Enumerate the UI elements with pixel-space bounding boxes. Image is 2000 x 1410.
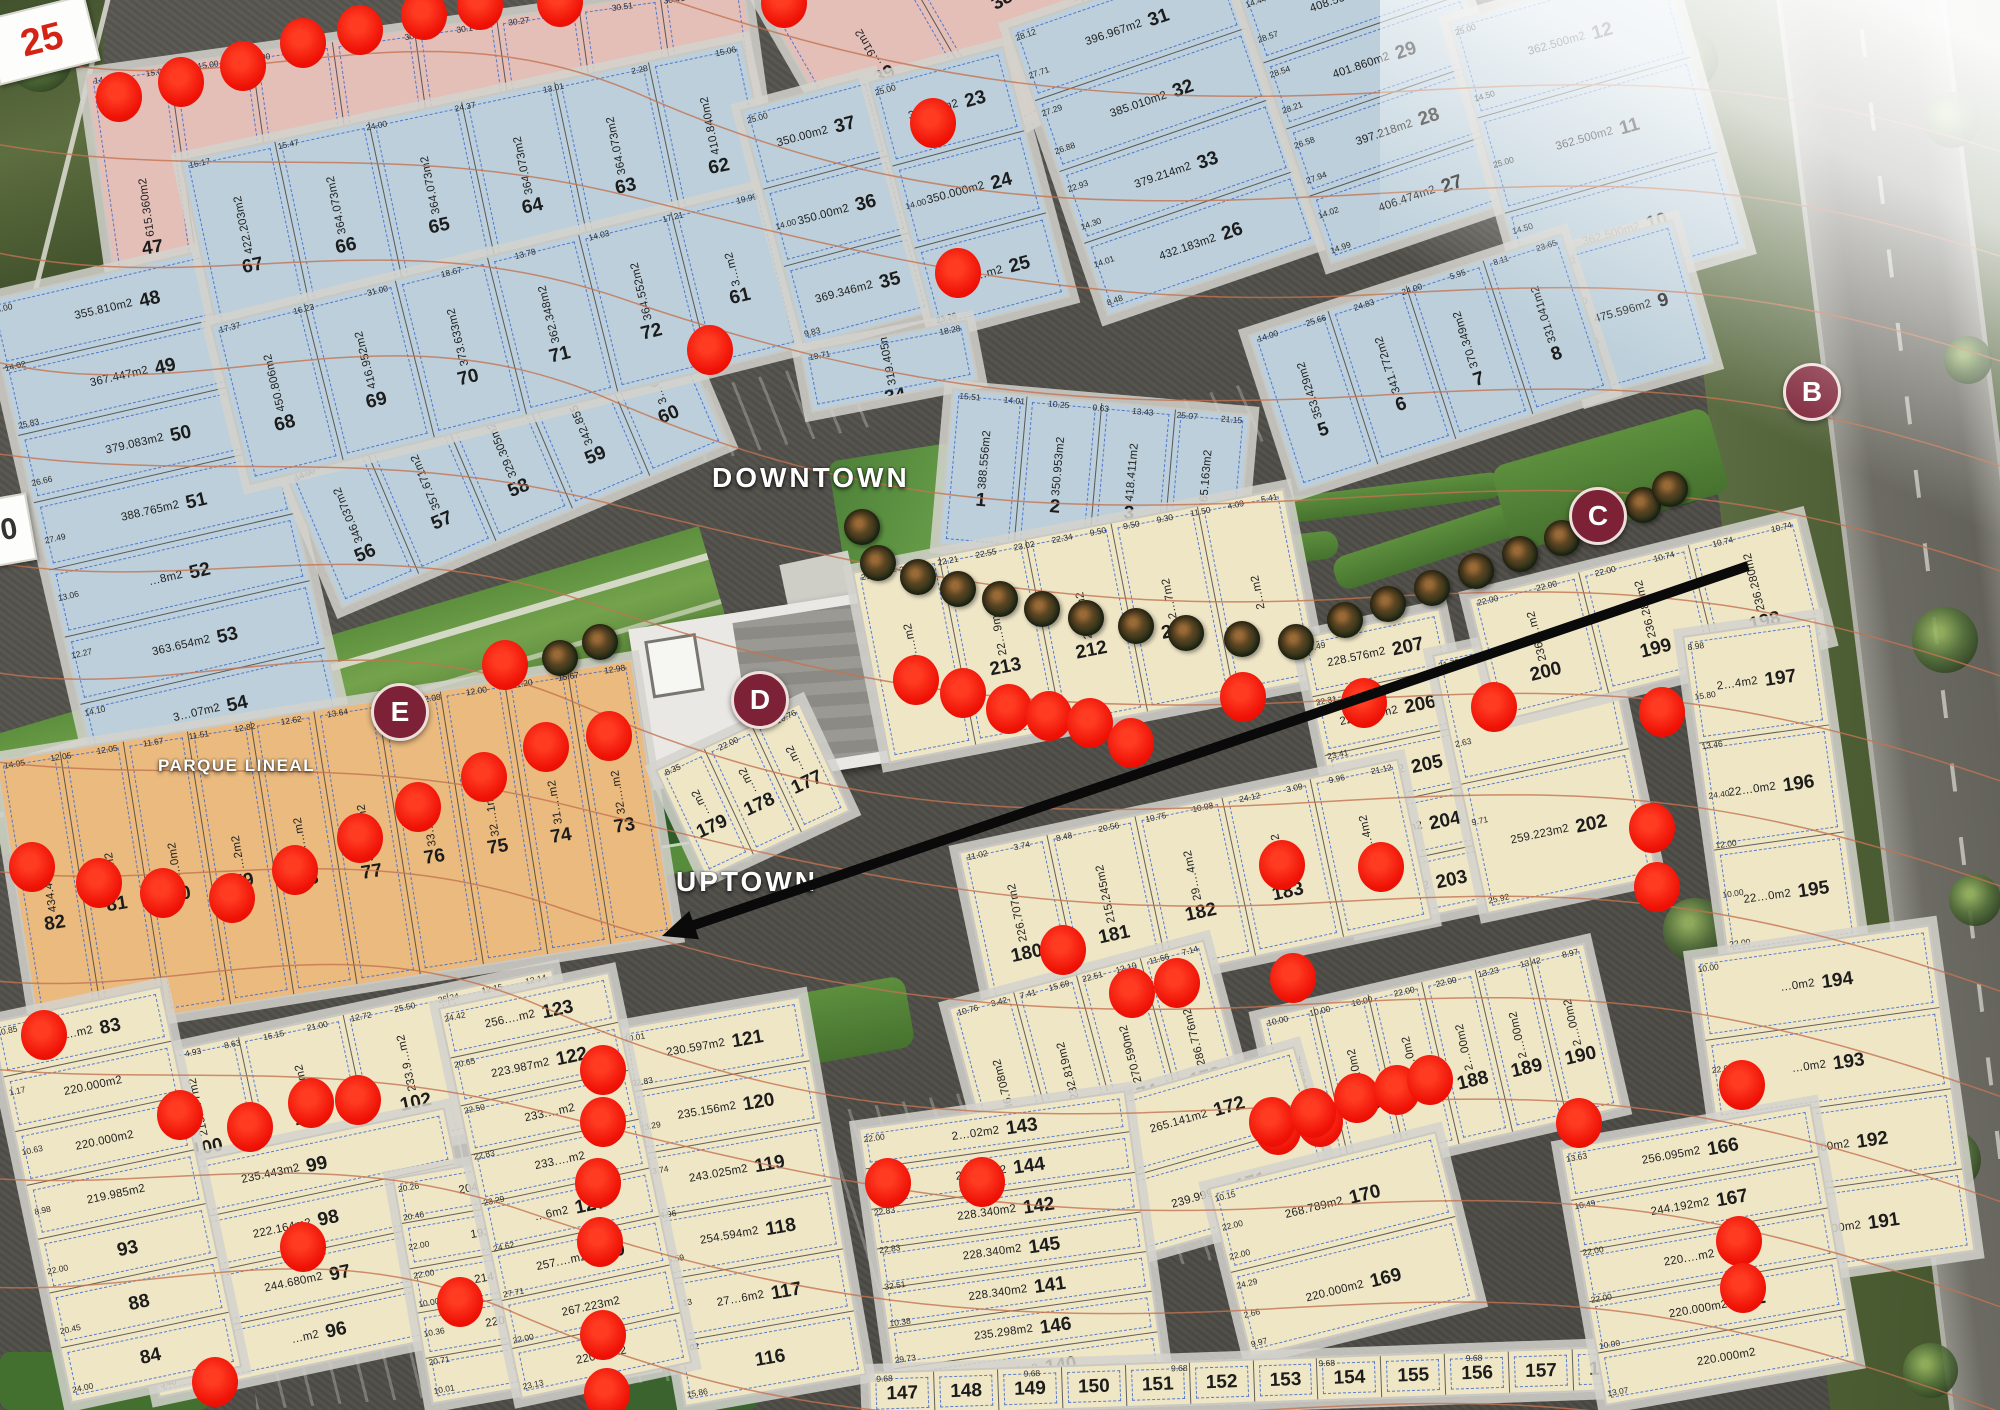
sold-lot-dot bbox=[192, 1357, 238, 1407]
tree-clump bbox=[1924, 92, 1980, 148]
lot-number: 6 bbox=[1393, 394, 1409, 415]
lot: 148 bbox=[934, 1369, 999, 1410]
lot-number: 51 bbox=[184, 489, 209, 512]
tree-clump bbox=[1949, 874, 2000, 926]
sold-lot-dot bbox=[1629, 803, 1675, 853]
tree-clump bbox=[1903, 1343, 1958, 1398]
lot-number: 12 bbox=[1589, 19, 1615, 43]
sold-lot-dot bbox=[1716, 1216, 1762, 1266]
lot-area: …91m2 bbox=[853, 26, 884, 68]
sold-lot-dot bbox=[1067, 698, 1113, 748]
lot-area: 350.00m2 bbox=[796, 202, 850, 227]
lot-area: 259.223m2 bbox=[1510, 822, 1571, 846]
lot-number: 27 bbox=[1439, 172, 1465, 197]
map-marker-d: D bbox=[731, 671, 789, 729]
lot-area: 363.654m2 bbox=[151, 633, 212, 658]
lot: 155 bbox=[1381, 1354, 1446, 1397]
sold-lot-dot bbox=[1154, 958, 1200, 1008]
sold-lot-dot bbox=[1259, 840, 1305, 890]
lot-area: 388.765m2 bbox=[120, 499, 181, 524]
sold-lot-dot bbox=[1634, 862, 1680, 912]
lot-number: 180 bbox=[1009, 941, 1044, 966]
lot: 149 bbox=[998, 1367, 1063, 1410]
lot-number: 123 bbox=[540, 997, 575, 1022]
lot-number: 202 bbox=[1574, 811, 1609, 836]
lot-number: 166 bbox=[1706, 1135, 1741, 1159]
lot-area: 228.340m2 bbox=[962, 1243, 1022, 1263]
lot-number: 70 bbox=[456, 366, 481, 390]
lot-area: 397.218m2 bbox=[1354, 117, 1414, 148]
lot-number: 179 bbox=[693, 811, 730, 842]
lot-area: 369.346m2 bbox=[814, 279, 874, 306]
tree-icon bbox=[1502, 536, 1538, 572]
lot: 157 bbox=[1509, 1349, 1574, 1392]
lot-number: 190 bbox=[1563, 1044, 1598, 1070]
map-marker-c: C bbox=[1569, 487, 1627, 545]
lot-number: 191 bbox=[1867, 1210, 1901, 1233]
lot-area: 364.552m2 bbox=[628, 261, 654, 321]
tree-icon bbox=[1024, 591, 1060, 627]
sold-lot-dot bbox=[96, 72, 142, 122]
sold-lot-dot bbox=[580, 1045, 626, 1095]
lot-area: 22…0m2 bbox=[1728, 781, 1777, 800]
lot-area: 2…00m2 bbox=[1508, 1010, 1530, 1059]
lot-area: 331.041m2 bbox=[1529, 285, 1559, 345]
sold-lot-dot bbox=[1639, 687, 1685, 737]
lot-number: 119 bbox=[753, 1152, 786, 1176]
sold-lot-dot bbox=[1108, 718, 1154, 768]
lot-number: 182 bbox=[1183, 899, 1218, 924]
sold-lot-dot bbox=[272, 845, 318, 895]
lot-number: 75 bbox=[486, 836, 510, 858]
lot-area: 329.305m2 bbox=[485, 420, 519, 479]
lot-area: 364.073m2 bbox=[605, 116, 629, 177]
lot-area: …2m2 bbox=[230, 834, 247, 870]
lot-number: 145 bbox=[1027, 1234, 1061, 1257]
lot-number: 35 bbox=[877, 268, 902, 292]
lot-number: 61 bbox=[728, 285, 753, 309]
lot-number: 188 bbox=[1455, 1068, 1490, 1094]
lot-number: 167 bbox=[1715, 1186, 1750, 1210]
lot-number: 93 bbox=[115, 1237, 140, 1260]
sold-lot-dot bbox=[1358, 842, 1404, 892]
lot-area: …m2 bbox=[290, 1328, 320, 1346]
lot-block: 13.6316.4922.0022.0010.0013.07256.095m21… bbox=[1560, 1104, 1857, 1406]
sold-lot-dot bbox=[227, 1102, 273, 1152]
lot-area: 370.349m2 bbox=[1451, 310, 1481, 370]
lot-number: 48 bbox=[137, 287, 162, 310]
sold-lot-dot bbox=[209, 873, 255, 923]
sold-lot-dot bbox=[9, 842, 55, 892]
lot-area: 365.163m2 bbox=[1198, 449, 1215, 509]
lot-area: 220.000m2 bbox=[63, 1074, 124, 1098]
lot-area: 373.633m2 bbox=[445, 307, 471, 367]
tree-icon bbox=[1327, 602, 1363, 638]
lot-number: 193 bbox=[1832, 1050, 1866, 1073]
lot-number: 49 bbox=[153, 355, 178, 378]
lot-number: 50 bbox=[168, 422, 193, 445]
lot-number: 38 bbox=[988, 0, 1016, 13]
lot-number: 199 bbox=[1638, 636, 1673, 662]
sold-lot-dot bbox=[1026, 691, 1072, 741]
lot-number: 153 bbox=[1269, 1370, 1301, 1390]
sold-lot-dot bbox=[1270, 953, 1316, 1003]
lot-number: 200 bbox=[1528, 659, 1563, 685]
lot-area: 353.429m2 bbox=[1296, 360, 1326, 420]
lot-area: 416.952m2 bbox=[353, 330, 379, 390]
lot-number: 31 bbox=[1145, 5, 1171, 30]
lot-number: 65 bbox=[427, 214, 452, 237]
lot: 151 bbox=[1126, 1363, 1191, 1406]
lot-area: 357.671m2 bbox=[409, 453, 443, 512]
sold-lot-dot bbox=[220, 41, 266, 91]
lot: 153 bbox=[1253, 1358, 1318, 1401]
lot-area: 233.…m2 bbox=[523, 1101, 576, 1123]
lot-area: 244.680m2 bbox=[263, 1271, 324, 1295]
lot-number: 73 bbox=[613, 815, 637, 837]
lot-area: …0m2 bbox=[1791, 1059, 1827, 1076]
tree-icon bbox=[1370, 586, 1406, 622]
sold-lot-dot bbox=[1290, 1088, 1336, 1138]
sold-lot-dot bbox=[940, 668, 986, 718]
lot-number: 150 bbox=[1078, 1377, 1110, 1397]
lot-number: 2 bbox=[1049, 497, 1061, 517]
lot-area: 418.411m2 bbox=[1124, 443, 1141, 502]
lot-area: 406.474m2 bbox=[1377, 184, 1437, 215]
tree-icon bbox=[844, 509, 880, 545]
lot-area: 346.037m2 bbox=[332, 486, 366, 545]
lot-area: 410.840m2 bbox=[698, 96, 722, 157]
lot-number: 54 bbox=[225, 692, 250, 715]
lot-number: 118 bbox=[764, 1215, 797, 1239]
tree-icon bbox=[900, 559, 936, 595]
lot-area: 3…07m2 bbox=[172, 702, 221, 724]
tree-icon bbox=[582, 624, 618, 660]
lot-area: 236.280m2 bbox=[1633, 579, 1659, 639]
lot-number: 213 bbox=[988, 655, 1023, 680]
lot-number: 121 bbox=[730, 1027, 765, 1051]
lot-area: 401.860m2 bbox=[1331, 51, 1391, 82]
sold-lot-dot bbox=[337, 813, 383, 863]
lot-area: 362.500m2 bbox=[1526, 30, 1586, 58]
lot-area: 364.073m2 bbox=[512, 135, 536, 196]
downtown-label: DOWNTOWN bbox=[712, 462, 910, 494]
lot-area: 220.000m2 bbox=[1305, 1278, 1365, 1304]
lot-number: 206 bbox=[1403, 692, 1438, 717]
lot-area: 32….m2 bbox=[610, 769, 629, 815]
lot-area: 31….m2 bbox=[546, 779, 565, 825]
sold-lot-dot bbox=[1720, 1263, 1766, 1313]
lot-area: 367.447m2 bbox=[89, 364, 150, 389]
parque-lineal-label: PARQUE LINEAL bbox=[158, 756, 315, 776]
tree-clump bbox=[1663, 898, 1727, 962]
sold-lot-dot bbox=[461, 752, 507, 802]
lot-number: 144 bbox=[1012, 1155, 1046, 1178]
lot-number: 29 bbox=[1393, 38, 1419, 63]
lot: 147 bbox=[870, 1372, 935, 1410]
clubhouse-skylight bbox=[644, 633, 704, 698]
lot-area: 422.203m2 bbox=[232, 195, 256, 256]
lot-area: 364.073m2 bbox=[419, 155, 443, 216]
sold-lot-dot bbox=[1407, 1055, 1453, 1105]
sold-lot-dot bbox=[584, 1368, 630, 1410]
lot-number: 157 bbox=[1525, 1361, 1557, 1381]
lot-area: …m2 bbox=[784, 744, 807, 775]
lot-number: 5 bbox=[1315, 419, 1331, 440]
sold-lot-dot bbox=[437, 1277, 483, 1327]
lot-number: 24 bbox=[989, 169, 1014, 193]
lot-area: 235.443m2 bbox=[240, 1162, 301, 1186]
lot-area: 236.…m2 bbox=[1525, 610, 1549, 663]
lot-number: 116 bbox=[753, 1346, 786, 1370]
lot-area: …m2 bbox=[737, 766, 760, 797]
sold-lot-dot bbox=[986, 684, 1032, 734]
lot-block: 22.0021.4022.8322.8332.5110.3829.7311.44… bbox=[858, 1090, 1165, 1410]
sold-lot-dot bbox=[288, 1078, 334, 1128]
lot-number: 69 bbox=[364, 388, 389, 412]
lot-area: 219.985m2 bbox=[86, 1182, 147, 1206]
lot-number: 74 bbox=[549, 825, 573, 847]
tree-icon bbox=[1652, 471, 1688, 507]
lot-number: 1 bbox=[975, 491, 987, 511]
sold-lot-dot bbox=[586, 711, 632, 761]
lot-number: 147 bbox=[886, 1383, 918, 1403]
lot-area: 408.551m2 bbox=[1308, 0, 1368, 15]
lot-area: …6m2 bbox=[533, 1204, 569, 1223]
lot-area: 228.340m2 bbox=[968, 1283, 1028, 1303]
tree-icon bbox=[542, 640, 578, 676]
lot-area: 2…00m2 bbox=[1454, 1022, 1476, 1071]
lot-number: 155 bbox=[1397, 1365, 1429, 1385]
tree-icon bbox=[1458, 553, 1494, 589]
sold-lot-dot bbox=[577, 1217, 623, 1267]
tree-icon bbox=[1068, 600, 1104, 636]
lot-number: 68 bbox=[272, 411, 297, 435]
lot-number: 196 bbox=[1782, 772, 1816, 795]
sold-lot-dot bbox=[580, 1310, 626, 1360]
lot-number: 72 bbox=[639, 320, 664, 344]
lot-number: 154 bbox=[1333, 1368, 1365, 1388]
lot-number: 207 bbox=[1390, 634, 1425, 659]
lot: 388.556m21 bbox=[940, 390, 1027, 550]
lot-number: 53 bbox=[215, 623, 240, 646]
lot-number: 76 bbox=[423, 846, 447, 868]
lot-area: 319.405m2 bbox=[876, 326, 899, 387]
lot-number: 98 bbox=[316, 1207, 341, 1230]
sold-lot-dot bbox=[1220, 672, 1266, 722]
tree-icon bbox=[940, 571, 976, 607]
lot-area: 220.000m2 bbox=[1668, 1298, 1729, 1320]
lot-number: 88 bbox=[127, 1291, 152, 1314]
lot-area: 385.010m2 bbox=[1108, 89, 1168, 120]
lot-area: 27…6m2 bbox=[716, 1289, 765, 1309]
lot-number: 25 bbox=[1007, 253, 1032, 277]
sold-lot-dot bbox=[523, 722, 569, 772]
lot-area: 379.214m2 bbox=[1133, 161, 1193, 192]
lot-number: 152 bbox=[1205, 1372, 1237, 1392]
lot-number: 71 bbox=[547, 343, 572, 367]
lot-area: 230.597m2 bbox=[666, 1037, 727, 1059]
sold-lot-dot bbox=[76, 858, 122, 908]
lot-area: 286.776m2 bbox=[1181, 1007, 1208, 1067]
lot-number: 120 bbox=[741, 1090, 776, 1114]
tree-icon bbox=[1278, 624, 1314, 660]
sold-lot-dot bbox=[575, 1158, 621, 1208]
lot: 2…4m2197 bbox=[1684, 619, 1829, 744]
lot-number: 8 bbox=[1549, 343, 1565, 364]
lot-area: 236.280m2 bbox=[1742, 551, 1768, 611]
sold-lot-dot bbox=[395, 782, 441, 832]
lot-area: 220.000m2 bbox=[74, 1128, 135, 1152]
lot-number: 33 bbox=[1195, 148, 1221, 173]
lot-number: 149 bbox=[1014, 1379, 1046, 1399]
lot-area: 29….4m2 bbox=[1182, 849, 1204, 902]
lot-area: 362.500m2 bbox=[1554, 125, 1614, 153]
tree-icon bbox=[1414, 570, 1450, 606]
lot-area: 615.360m2 bbox=[137, 177, 157, 237]
lot-number: 203 bbox=[1434, 868, 1469, 893]
lot-number: 189 bbox=[1509, 1056, 1544, 1082]
lot: 152 bbox=[1189, 1361, 1254, 1404]
lot-area: 270.590m2 bbox=[1118, 1024, 1145, 1084]
sold-lot-dot bbox=[1719, 1060, 1765, 1110]
site-plan-map: DOWNTOWN UPTOWN PARQUE LINEAL 25 0 14.00… bbox=[0, 0, 2000, 1410]
lot-number: 47 bbox=[141, 237, 165, 259]
lot: 156 bbox=[1445, 1352, 1510, 1395]
lot-number: 7 bbox=[1471, 368, 1487, 389]
lot: 154 bbox=[1317, 1356, 1382, 1399]
lot-number: 192 bbox=[1855, 1129, 1889, 1152]
lot-area: 256.…m2 bbox=[484, 1008, 537, 1030]
tree-icon bbox=[860, 545, 896, 581]
lot-area: 22…0m2 bbox=[1743, 887, 1792, 906]
lot-area: 215.245m2 bbox=[1094, 864, 1118, 925]
lot-area: 475.596m2 bbox=[1593, 298, 1653, 326]
lot-area: 350.000m2 bbox=[925, 180, 985, 207]
sold-lot-dot bbox=[893, 655, 939, 705]
lot-number: 83 bbox=[98, 1015, 123, 1038]
sold-lot-dot bbox=[935, 248, 981, 298]
lot-number: 97 bbox=[328, 1261, 353, 1284]
lot-area: 450.806m2 bbox=[262, 353, 288, 413]
lot-area: 220.000m2 bbox=[1696, 1346, 1757, 1368]
sold-lot-dot bbox=[140, 868, 186, 918]
lot-number: 84 bbox=[138, 1345, 163, 1368]
lot-number: 142 bbox=[1022, 1194, 1056, 1217]
lot-number: 37 bbox=[832, 113, 857, 137]
sold-lot-dot bbox=[580, 1097, 626, 1147]
lot-area: 265.141m2 bbox=[1149, 1108, 1209, 1136]
map-marker-b: B bbox=[1783, 363, 1841, 421]
lot-area: 226.707m2 bbox=[1006, 883, 1030, 944]
tree-clump bbox=[1944, 336, 1992, 384]
lot-area: 2…02m2 bbox=[951, 1124, 1000, 1143]
lot-area: 268.789m2 bbox=[1284, 1194, 1344, 1220]
lot-number: 36 bbox=[853, 191, 878, 215]
lot-area: 2…7m2 bbox=[1161, 577, 1181, 620]
sold-lot-dot bbox=[337, 5, 383, 55]
lot-area: 244.192m2 bbox=[1650, 1196, 1711, 1218]
lot-number: 82 bbox=[43, 912, 67, 934]
lot-number: 146 bbox=[1039, 1314, 1073, 1337]
lot-area: 388.556m2 bbox=[976, 430, 993, 490]
lot-number: 34 bbox=[883, 385, 907, 408]
lot-area: …0m2 bbox=[1780, 978, 1816, 995]
tree-icon bbox=[982, 581, 1018, 617]
lot-area: 341.772m2 bbox=[1373, 335, 1403, 395]
lot-number: 151 bbox=[1142, 1374, 1174, 1394]
lot-area: 396.967m2 bbox=[1084, 18, 1144, 49]
lot-number: 205 bbox=[1409, 751, 1444, 776]
lot-number: 195 bbox=[1797, 878, 1831, 901]
lot-number: 143 bbox=[1005, 1115, 1039, 1138]
lot-area: 2…m2 bbox=[1249, 574, 1267, 610]
lot-number: 66 bbox=[334, 234, 359, 257]
lot-number: 156 bbox=[1461, 1363, 1493, 1383]
lot-number: 28 bbox=[1416, 105, 1442, 130]
lot-number: 63 bbox=[613, 175, 638, 198]
sold-lot-dot bbox=[1249, 1097, 1295, 1147]
sold-lot-dot bbox=[1471, 682, 1517, 732]
lot-number: 77 bbox=[360, 861, 384, 883]
sold-lot-dot bbox=[687, 325, 733, 375]
lot-area: 243.025m2 bbox=[688, 1162, 749, 1184]
lot-area: 232.819m2 bbox=[1055, 1041, 1082, 1101]
lot-number: 23 bbox=[963, 87, 988, 111]
lot-number: 181 bbox=[1097, 922, 1132, 947]
sold-lot-dot bbox=[910, 98, 956, 148]
tree-clump bbox=[1912, 607, 1978, 673]
sold-lot-dot bbox=[280, 18, 326, 68]
lot-area: 350.00m2 bbox=[775, 124, 829, 149]
sold-lot-dot bbox=[21, 1010, 67, 1060]
lot-area: 228.576m2 bbox=[1326, 645, 1387, 669]
lot-area: …8m2 bbox=[147, 569, 183, 588]
lot-area: 2…4m2 bbox=[1716, 675, 1759, 693]
lot-area: 235.298m2 bbox=[973, 1323, 1033, 1343]
sold-lot-dot bbox=[1334, 1073, 1380, 1123]
lot-number: 32 bbox=[1170, 77, 1196, 102]
sold-lot-dot bbox=[1341, 678, 1387, 728]
lot-area: 362.348m2 bbox=[537, 284, 563, 344]
sold-lot-dot bbox=[959, 1157, 1005, 1207]
lot-area: 3…m2 bbox=[723, 250, 743, 287]
lot-number: 148 bbox=[950, 1381, 982, 1401]
sold-lot-dot bbox=[335, 1075, 381, 1125]
lot-number: 178 bbox=[741, 789, 778, 820]
tree-icon bbox=[1224, 621, 1260, 657]
lot-number: 172 bbox=[1211, 1094, 1247, 1121]
lot-area: 364.073m2 bbox=[325, 175, 349, 236]
lot-area: 432.183m2 bbox=[1158, 232, 1218, 263]
lot-number: 11 bbox=[1617, 114, 1642, 138]
sold-lot-dot bbox=[1040, 925, 1086, 975]
sold-lot-dot bbox=[158, 57, 204, 107]
lot-number: 169 bbox=[1368, 1265, 1403, 1291]
lot-number: 9 bbox=[1655, 289, 1670, 310]
lot-area: …m2 bbox=[690, 788, 713, 819]
tree-icon bbox=[1168, 615, 1204, 651]
lot-number: 204 bbox=[1427, 808, 1462, 833]
lot-area: 233.9…m2 bbox=[396, 1033, 420, 1092]
sold-lot-dot bbox=[482, 640, 528, 690]
lot-number: 170 bbox=[1347, 1182, 1382, 1208]
lot-area: 379.083m2 bbox=[104, 432, 165, 457]
lot-number: 26 bbox=[1219, 219, 1245, 244]
lot-area: 235.156m2 bbox=[677, 1100, 738, 1122]
lot-number: 141 bbox=[1033, 1274, 1067, 1297]
lot-area: 254.594m2 bbox=[699, 1225, 760, 1247]
